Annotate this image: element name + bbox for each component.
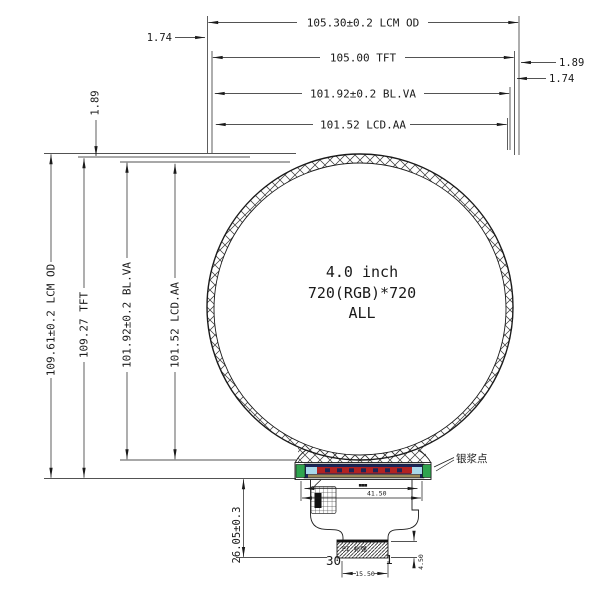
dim-lcm-od-h: 105.30±0.2 LCM OD xyxy=(307,17,420,30)
dim-tft-v: 109.27 TFT xyxy=(78,292,91,359)
silver-paste-leaders xyxy=(434,458,454,472)
drawing-canvas: 4.0 inch 720(RGB)*720 ALL ■■■ 银浆点 105.30… xyxy=(0,0,600,600)
dim-blva-h: 101.92±0.2 BL.VA xyxy=(310,88,416,101)
dim-tft-h: 105.00 TFT xyxy=(330,52,397,65)
bar-end-left xyxy=(306,467,317,474)
panel-note-text: ALL xyxy=(348,304,375,322)
offset-right1-label: 1.89 xyxy=(559,57,584,69)
offset-right2-label: 1.74 xyxy=(549,73,574,85)
pin-last-label: 1 xyxy=(385,552,393,567)
stiffener-label: PI 补强 xyxy=(342,544,367,553)
dim-lcm-od-v: 109.61±0.2 LCM OD xyxy=(45,264,58,377)
tan-stripe xyxy=(308,475,420,478)
lcd-module-drawing: 4.0 inch 720(RGB)*720 ALL ■■■ 银浆点 105.30… xyxy=(0,0,600,600)
bonding-bar: ■■■ xyxy=(295,463,431,489)
dim-lcdaa-h: 101.52 LCD.AA xyxy=(320,119,406,132)
silver-paste-label: 银浆点 xyxy=(456,452,488,465)
offset-left-label: 1.74 xyxy=(147,32,172,44)
silver-pad-left xyxy=(296,465,305,478)
dim-lcdaa-v: 101.52 LCD.AA xyxy=(169,282,182,368)
connector-top-strip xyxy=(337,540,388,543)
panel-resolution-text: 720(RGB)*720 xyxy=(308,284,416,302)
offset-top-label: 1.89 xyxy=(90,90,102,115)
fpc-assembly: PI 补强 30 1 xyxy=(311,480,419,568)
top-extension-lines xyxy=(208,16,520,155)
dim-fpc-height: 26.05±0.3 xyxy=(231,507,243,564)
silver-pad-right xyxy=(423,465,432,478)
micro-label: ■■■ xyxy=(359,484,367,489)
dim-connector-height: 4.50 xyxy=(417,554,425,570)
dim-connector-width: 15.50 xyxy=(355,570,375,578)
panel-size-text: 4.0 inch xyxy=(326,263,398,281)
display-module: 4.0 inch 720(RGB)*720 ALL xyxy=(207,154,513,463)
center-label: 4.0 inch 720(RGB)*720 ALL xyxy=(308,263,416,322)
silver-paste-callout: 银浆点 xyxy=(434,452,488,471)
dim-blva-v: 101.92±0.2 BL.VA xyxy=(121,262,134,368)
bar-end-right xyxy=(411,467,422,474)
component-leader xyxy=(314,480,321,487)
fpc-outline-right xyxy=(388,480,419,540)
top-dimensions: 105.30±0.2 LCM OD 105.00 TFT 101.92±0.2 … xyxy=(147,16,585,155)
dim-bonding-width: 41.50 xyxy=(367,490,387,498)
grid-component-chip xyxy=(315,493,322,508)
pin-first-label: 30 xyxy=(326,553,341,568)
